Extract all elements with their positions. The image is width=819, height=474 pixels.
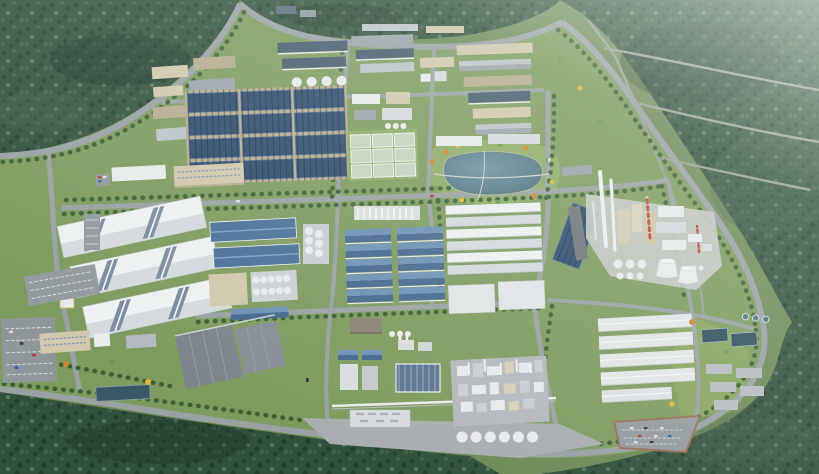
aerial-render-canvas: [0, 0, 819, 474]
atmospheric-haze: [0, 0, 819, 474]
industrial-park-render: [0, 0, 819, 474]
